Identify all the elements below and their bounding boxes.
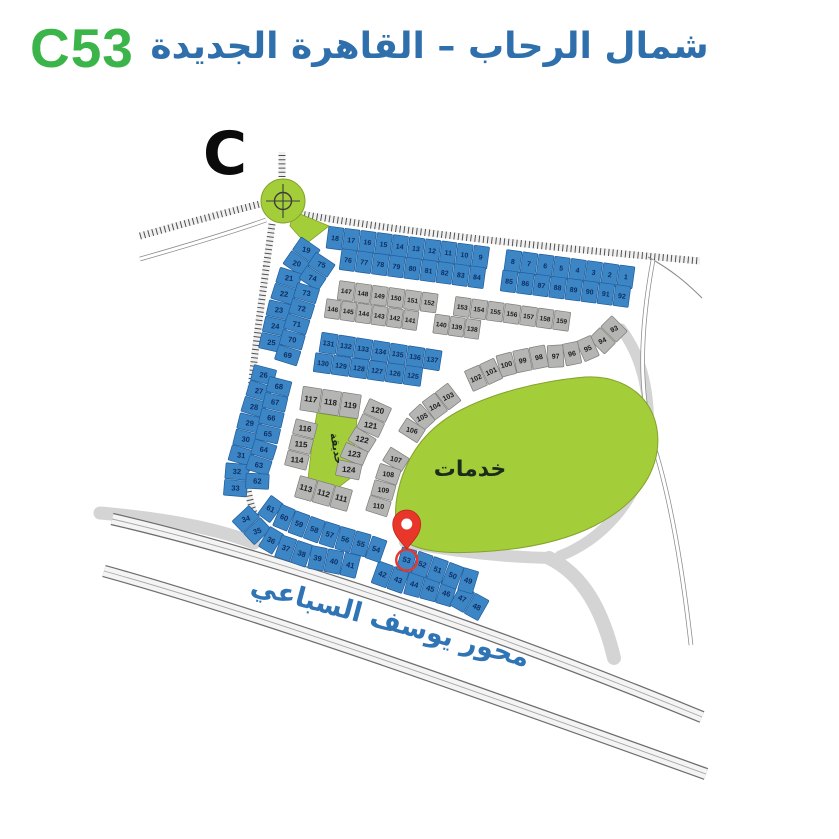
plot-number-wrap: 33 [231, 483, 240, 492]
plot-number-68: 68 [274, 382, 283, 392]
plot-number-62: 62 [253, 477, 262, 486]
plot-number-wrap: 85 [505, 278, 514, 286]
plot-number-wrap: 84 [472, 274, 481, 282]
plot-number-71: 71 [292, 319, 301, 329]
plot-number-11: 11 [444, 250, 452, 258]
plot-number-wrap: 72 [297, 304, 306, 314]
roundabout [261, 179, 305, 223]
plot-number-wrap: 25 [267, 338, 276, 348]
plot-number-15: 15 [379, 241, 388, 249]
plot-number-wrap: 63 [254, 460, 263, 470]
plot-number-66: 66 [267, 413, 276, 423]
plot-number-39: 39 [313, 553, 323, 563]
plot-number-wrap: 16 [363, 239, 372, 247]
plot-number-wrap: 26 [259, 370, 268, 380]
plot-number-wrap: 87 [537, 282, 546, 290]
plot-number-23: 23 [274, 305, 283, 315]
plot-number-110: 110 [372, 503, 384, 511]
plot-number-wrap: 29 [245, 418, 254, 428]
plot-number-124: 124 [342, 465, 357, 475]
plot-number-wrap: 76 [344, 257, 353, 265]
plot-number-wrap: 71 [292, 319, 301, 329]
plot-number-wrap: 77 [360, 259, 369, 267]
plot-number-65: 65 [263, 429, 272, 439]
gray-strip-ramp [549, 558, 614, 658]
plot-number-13: 13 [411, 246, 420, 254]
plot-number-wrap: 67 [271, 397, 280, 407]
plot-number-wrap: 14 [395, 243, 404, 251]
plot-number-wrap: 88 [553, 285, 562, 293]
plot-number-wrap: 66 [267, 413, 276, 423]
plot-number-10: 10 [460, 252, 469, 260]
plot-number-wrap: 78 [376, 261, 385, 269]
plot-number-wrap: 10 [460, 252, 469, 260]
plot-number-wrap: 40 [329, 556, 339, 566]
plot-code: C53 [30, 16, 134, 80]
plot-number-wrap: 108 [382, 471, 395, 479]
plot-number-80: 80 [408, 266, 417, 274]
plot-number-27: 27 [254, 386, 263, 396]
plot-number-70: 70 [288, 335, 297, 345]
plot-band-CU1: 117118119 [300, 386, 362, 419]
plot-number-wrap: 79 [392, 263, 401, 271]
plot-number-90: 90 [585, 289, 594, 297]
plot-number-91: 91 [601, 291, 610, 299]
plot-number-81: 81 [424, 268, 433, 276]
plot-number-wrap: 116 [298, 424, 312, 434]
plot-number-67: 67 [271, 397, 280, 407]
plot-number-82: 82 [440, 270, 449, 278]
plot-number-114: 114 [290, 455, 304, 465]
plot-number-69: 69 [283, 350, 292, 360]
plot-number-115: 115 [294, 439, 308, 449]
plot-number-29: 29 [245, 418, 254, 428]
plot-number-wrap: 89 [569, 287, 578, 295]
plot-number-32: 32 [233, 467, 242, 476]
plot-number-25: 25 [267, 338, 276, 348]
plot-number-116: 116 [298, 424, 312, 434]
plot-number-14: 14 [395, 243, 404, 251]
plot-number-wrap: 62 [253, 477, 262, 486]
plot-number-wrap: 69 [283, 350, 292, 360]
plot-number-73: 73 [302, 288, 311, 298]
plot-number-78: 78 [376, 261, 385, 269]
plot-map-page: C53 شمال الرحاب – القاهرة الجديدة [0, 0, 839, 839]
plot-number-wrap: 22 [279, 289, 288, 299]
plot-number-wrap: 30 [241, 434, 250, 444]
plot-number-63: 63 [254, 460, 263, 470]
service-road-northwest-top [140, 220, 266, 259]
plot-number-33: 33 [231, 483, 240, 492]
plot-number-wrap: 39 [313, 553, 323, 563]
plot-number-79: 79 [392, 263, 401, 271]
plot-number-wrap: 109 [377, 487, 389, 495]
plot-number-wrap: 32 [233, 467, 242, 476]
plot-number-wrap: 114 [290, 455, 304, 465]
map-canvas: 1817161514131211109876543217677787980818… [0, 0, 839, 839]
plot-number-83: 83 [456, 272, 465, 280]
plot-number-wrap: 11 [444, 250, 452, 258]
plot-number-12: 12 [428, 248, 437, 256]
plot-number-89: 89 [569, 287, 578, 295]
plot-number-72: 72 [297, 304, 306, 314]
plot-number-wrap: 23 [274, 305, 283, 315]
plot-number-85: 85 [505, 278, 514, 286]
plot-number-22: 22 [279, 289, 288, 299]
plot-number-wrap: 65 [263, 429, 272, 439]
plot-number-92: 92 [617, 293, 626, 301]
plot-number-wrap: 70 [288, 335, 297, 345]
plot-number-88: 88 [553, 285, 562, 293]
services-label: خدمات [434, 457, 507, 482]
plot-number-wrap: 81 [424, 268, 433, 276]
plot-number-wrap: 90 [585, 289, 594, 297]
plot-number-wrap: 31 [237, 450, 246, 460]
plot-number-wrap: 92 [617, 293, 626, 301]
plot-number-wrap: 97 [552, 353, 560, 360]
plot-number-wrap: 73 [302, 288, 311, 298]
plot-number-26: 26 [259, 370, 268, 380]
plot-number-16: 16 [363, 239, 372, 247]
plot-number-87: 87 [537, 282, 546, 290]
plot-number-wrap: 18 [331, 235, 340, 243]
plot-number-40: 40 [329, 556, 339, 566]
plot-number-wrap: 83 [456, 272, 465, 280]
plot-number-30: 30 [241, 434, 250, 444]
section-letter: C [203, 119, 247, 189]
plot-number-31: 31 [237, 450, 246, 460]
plot-number-wrap: 27 [254, 386, 263, 396]
plot-number-wrap: 110 [372, 503, 384, 511]
plot-number-17: 17 [347, 237, 356, 245]
plot-number-84: 84 [472, 274, 481, 282]
plot-number-109: 109 [377, 487, 389, 495]
plot-number-wrap: 82 [440, 270, 449, 278]
location-pin-hole [401, 519, 412, 530]
plot-number-108: 108 [382, 471, 395, 479]
plot-number-76: 76 [344, 257, 353, 265]
plot-number-wrap: 12 [428, 248, 437, 256]
plot-number-77: 77 [360, 259, 369, 267]
plot-number-wrap: 124 [342, 465, 357, 475]
plot-number-97: 97 [552, 353, 560, 360]
plot-number-18: 18 [331, 235, 340, 243]
plot-number-wrap: 13 [411, 246, 420, 254]
plot-number-wrap: 115 [294, 439, 308, 449]
plot-number-wrap: 21 [284, 273, 293, 283]
plot-number-wrap: 15 [379, 241, 388, 249]
plot-number-wrap: 91 [601, 291, 610, 299]
plot-number-21: 21 [284, 273, 293, 283]
plot-number-28: 28 [249, 402, 258, 412]
plot-number-86: 86 [521, 280, 530, 288]
plot-number-wrap: 86 [521, 280, 530, 288]
plot-number-wrap: 68 [274, 382, 283, 392]
plot-number-wrap: 80 [408, 266, 417, 274]
plot-number-wrap: 17 [347, 237, 356, 245]
plot-number-wrap: 28 [249, 402, 258, 412]
page-title: شمال الرحاب – القاهرة الجديدة [125, 26, 734, 67]
